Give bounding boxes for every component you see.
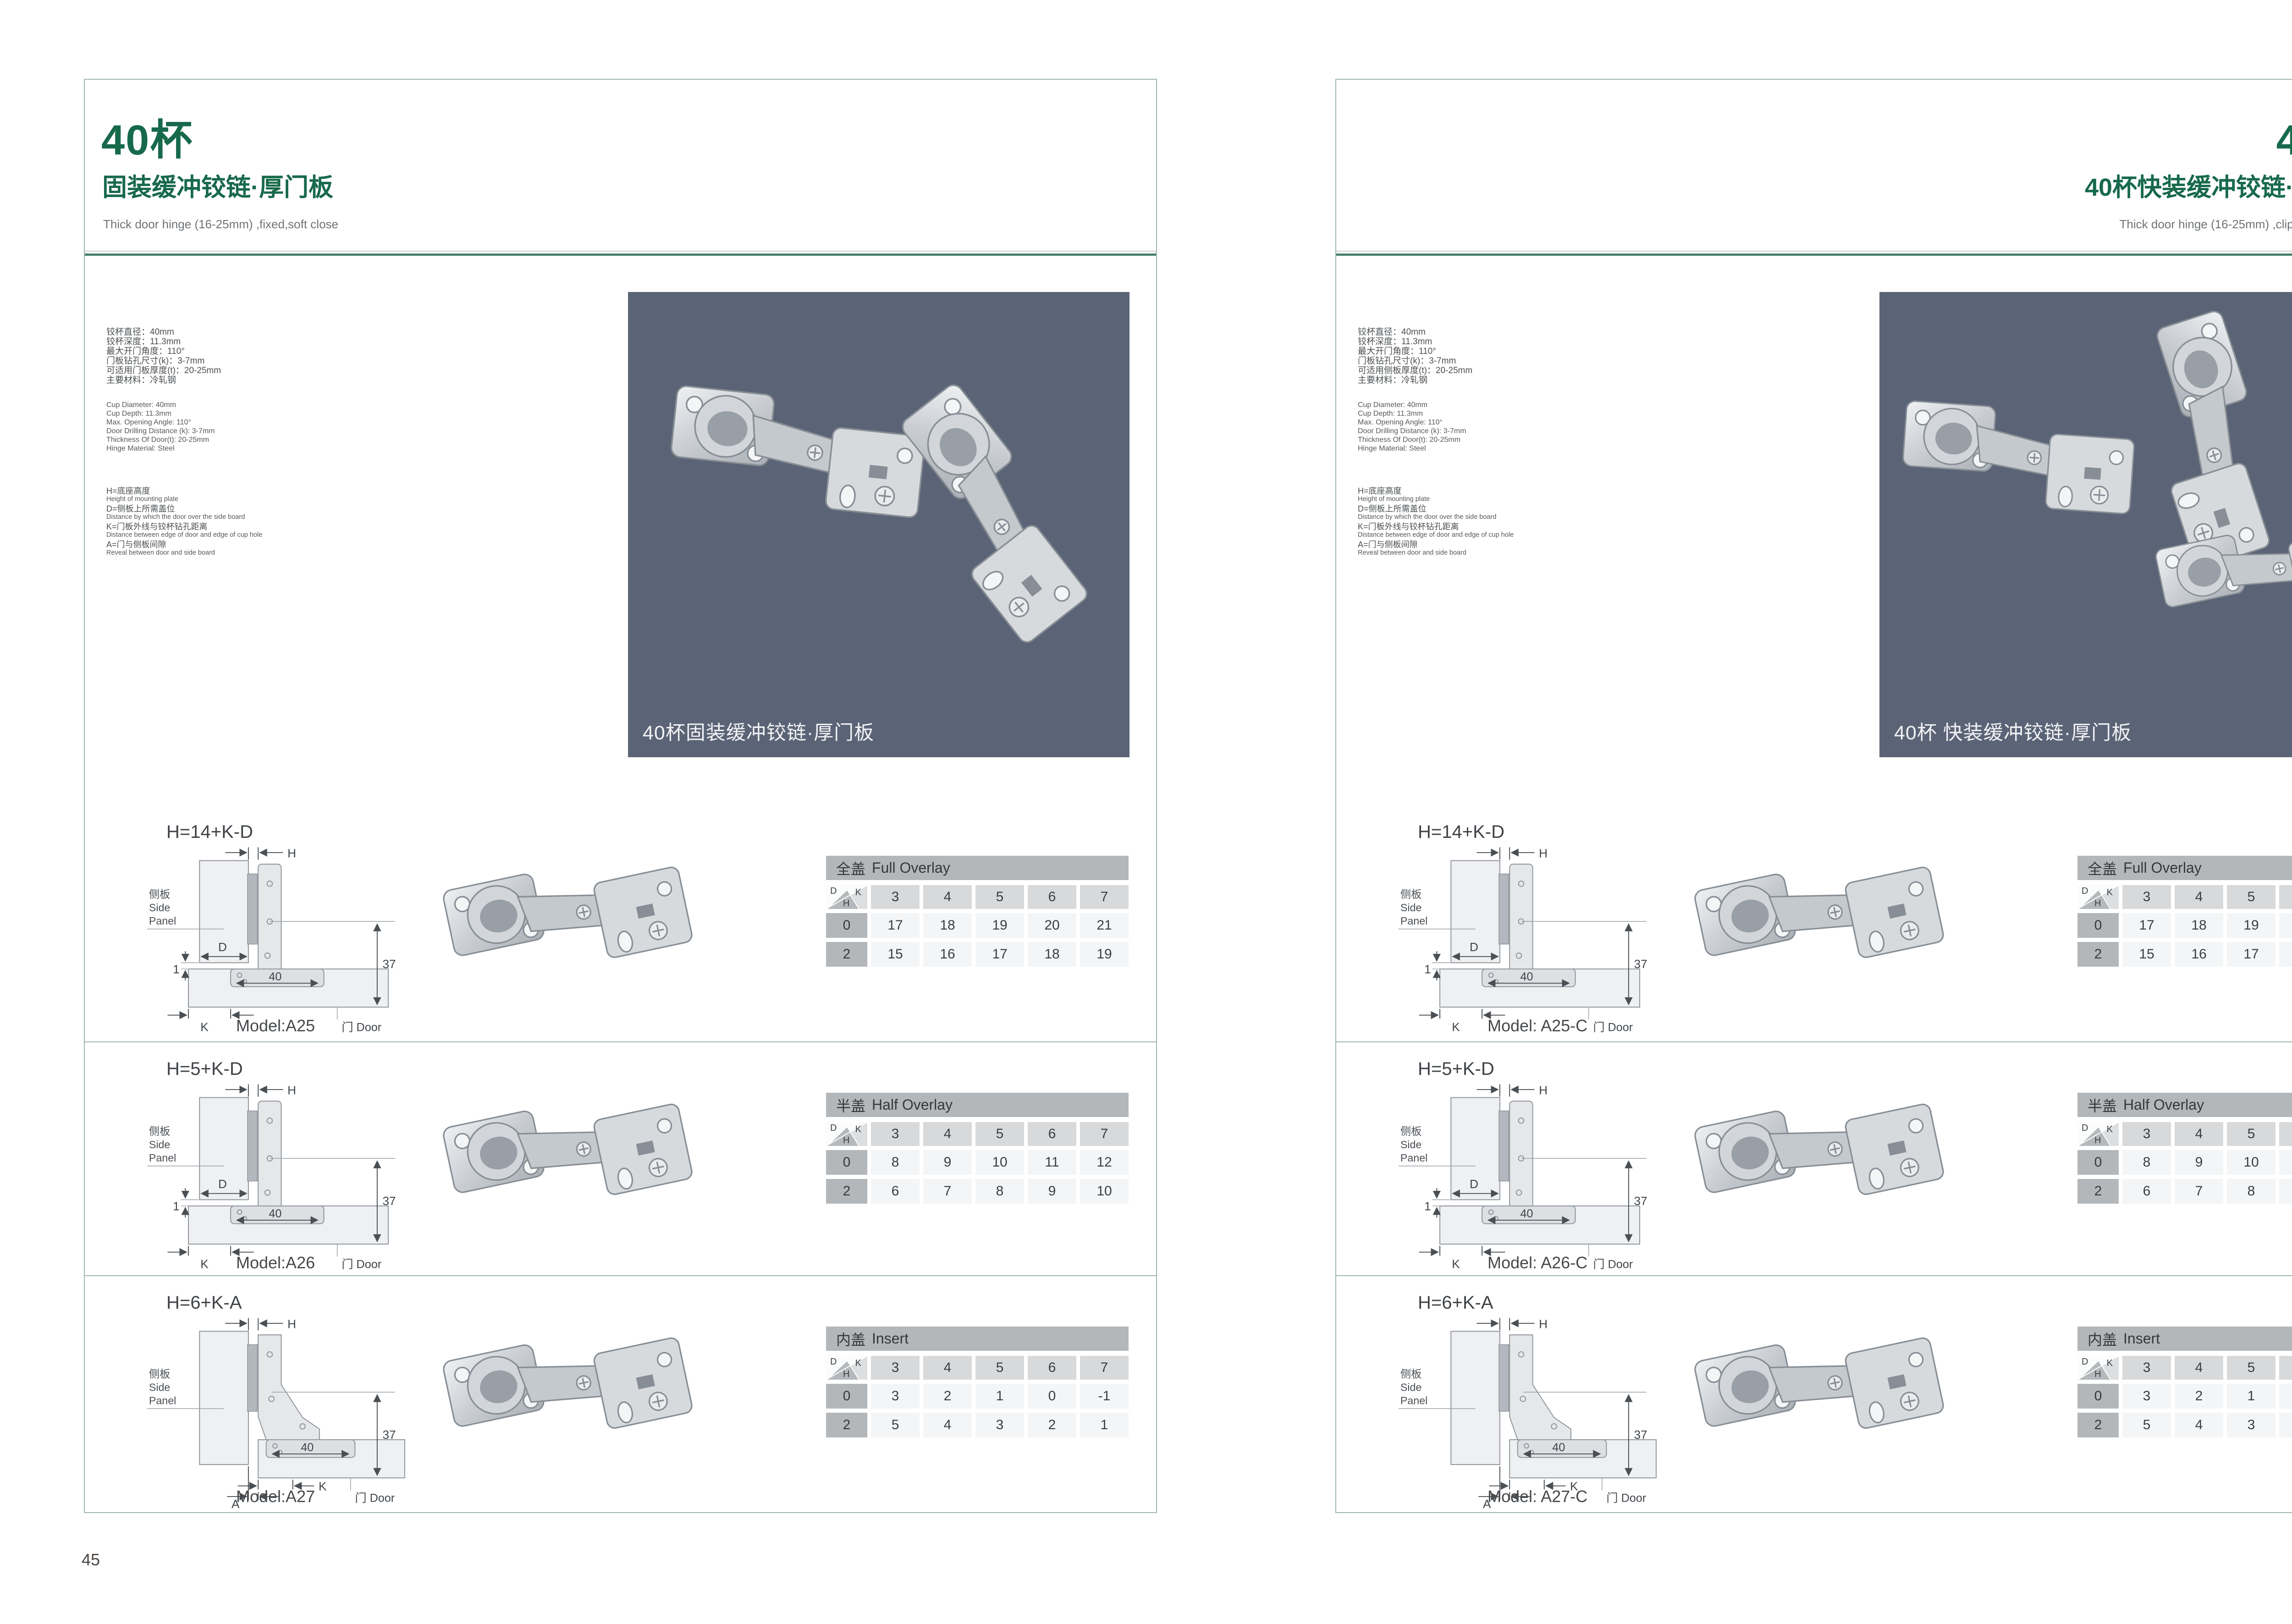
table-value-cell: 17 (975, 942, 1024, 967)
table-title-en: Full Overlay (2123, 859, 2202, 876)
hinge-photo-image (438, 1278, 694, 1475)
spec-line-en: Hinge Material: Steel (106, 444, 215, 453)
table-value-cell: 1 (975, 1384, 1024, 1409)
table-title-cn: 全盖 (2088, 858, 2117, 879)
side-panel-label-en2: Panel (149, 915, 176, 927)
product-photo-image (1879, 292, 2292, 757)
insert-diagram: H 侧板 Side Panel 37 40 K A 门 Door (1380, 1310, 1673, 1510)
hinge-photo (438, 807, 694, 1004)
page-46: 40杯 40杯快装缓冲铰链·厚门板 Thick door hinge (16-2… (1335, 79, 2292, 1513)
installation-diagram: H 侧板 Side Panel D 1 40 37 K 门 Door (128, 839, 422, 1039)
page-subtitle: 40杯快装缓冲铰链·厚门板 (2085, 173, 2292, 202)
dim-k-label: K (1452, 1257, 1460, 1271)
side-panel-label-en2: Panel (1400, 1152, 1427, 1164)
table-title: 半盖 Half Overlay (2077, 1093, 2292, 1117)
installation-diagram: H 侧板 Side Panel 37 40 K A 门 Door (128, 1310, 422, 1510)
dim-h-label: H (287, 847, 296, 860)
table-grid: D K H 345670891011122678910 (2077, 1122, 2292, 1204)
table-grid: D K H 3456703210-1254321 (826, 1356, 1129, 1437)
dim-d-label: D (1470, 940, 1478, 954)
spec-line-en: Cup Depth: 11.3mm (106, 409, 215, 418)
table-col-header: 6 (2279, 1122, 2292, 1146)
table-grid: D K H 345670171819202121516171819 (2077, 885, 2292, 967)
dim-37-label: 37 (382, 957, 396, 971)
dimension-table: 半盖 Half Overlay D K H 345670891011122678… (826, 1093, 1129, 1204)
hinge-photo (438, 1044, 694, 1241)
side-panel-label-en2: Panel (1400, 915, 1427, 927)
door-label: 门 Door (342, 1258, 381, 1271)
hinge-photo-image (1689, 807, 1946, 1004)
table-value-cell: 16 (923, 942, 972, 967)
table-col-header: 6 (2279, 885, 2292, 909)
corner-label-d: D (2082, 1123, 2088, 1134)
door-label: 门 Door (1593, 1258, 1633, 1271)
legend-term-en: Distance by which the door over the side… (106, 513, 519, 521)
spec-line-en: Cup Depth: 11.3mm (1358, 409, 1466, 418)
spec-line-en: Door Drilling Distance (k): 3-7mm (1358, 427, 1466, 435)
table-col-header: 4 (923, 1356, 972, 1380)
legend-term-cn: D=侧板上所需盖位 (106, 504, 519, 513)
spec-line-cn: 主要材料：冷轧钢 (106, 375, 221, 385)
table-grid: D K H 3456703210-1254321 (2077, 1356, 2292, 1437)
table-col-header: 6 (1028, 1122, 1076, 1146)
table-col-header: 4 (2175, 885, 2223, 909)
dimension-table: 内盖 Insert D K H 3456703210-1254321 (2077, 1327, 2292, 1437)
table-col-header: 5 (975, 1122, 1024, 1146)
table-value-cell: 10 (1080, 1179, 1129, 1204)
spec-line-en: Thickness Of Door(t): 20-25mm (1358, 435, 1466, 444)
corner-label-h: H (843, 898, 849, 909)
hinge-photo (438, 1278, 694, 1475)
door-label: 门 Door (355, 1492, 395, 1505)
spec-line-cn: 铰杯直径：40mm (1358, 327, 1472, 337)
spec-line-cn: 铰杯深度：11.3mm (106, 337, 221, 347)
row-divider (1336, 1275, 2292, 1276)
table-grid: D K H 345670891011122678910 (826, 1122, 1129, 1204)
table-value-cell: 3 (2122, 1384, 2171, 1409)
hinge-photo-image (438, 807, 694, 1004)
side-panel-shape (199, 1332, 248, 1465)
legend-term-cn: K=门板外线与铰杯钻孔距离 (1358, 522, 1770, 531)
legend-term-en: Reveal between door and side board (1358, 549, 1770, 556)
spec-line-en: Max. Opening Angle: 110° (106, 418, 215, 427)
model-label: Model: A27-C (1488, 1487, 1587, 1506)
table-value-cell: 6 (2122, 1179, 2171, 1204)
dim-40-label: 40 (301, 1441, 314, 1454)
installation-diagram: H 侧板 Side Panel 37 40 K A 门 Door (1380, 1310, 1673, 1510)
dim-40-label: 40 (1552, 1441, 1565, 1454)
table-col-header: 3 (871, 1356, 920, 1380)
table-title: 全盖 Full Overlay (826, 856, 1129, 880)
table-col-header: 4 (923, 885, 972, 909)
dim-37-label: 37 (382, 1194, 396, 1208)
table-value-cell: 18 (2279, 942, 2292, 967)
table-col-header: 3 (2122, 885, 2171, 909)
corner-label-k: K (855, 1124, 861, 1135)
photo-caption: 40杯固装缓冲铰链·厚门板 (643, 717, 874, 745)
table-value-cell: 3 (871, 1384, 920, 1409)
specs-cn: 铰杯直径：40mm铰杯深度：11.3mm最大开门角度：110°门板钻孔尺寸(k)… (106, 327, 221, 385)
dim-d-label: D (218, 1177, 227, 1191)
model-label: Model: A26-C (1488, 1253, 1587, 1272)
table-value-cell: 9 (2175, 1150, 2223, 1175)
dim-40-label: 40 (1520, 1207, 1533, 1220)
product-variant-row: H=14+K-D H 侧板 Side Panel D 1 40 37 (1336, 804, 2292, 1041)
specs-cn: 铰杯直径：40mm铰杯深度：11.3mm最大开门角度：110°门板钻孔尺寸(k)… (1358, 327, 1472, 385)
door-label: 门 Door (1606, 1492, 1646, 1505)
corner-label-d: D (2082, 1357, 2088, 1367)
table-value-cell: 19 (2227, 913, 2275, 938)
product-variant-row: H=6+K-A H 侧板 Side Panel 37 40 K (85, 1275, 1156, 1511)
table-col-header: 5 (2227, 1122, 2275, 1146)
legend-term-en: Distance between edge of door and edge o… (106, 531, 519, 539)
table-title-en: Half Overlay (2123, 1096, 2204, 1113)
table-col-header: 7 (1080, 885, 1129, 909)
page-title: 40杯 (101, 119, 193, 161)
table-value-cell: 19 (1080, 942, 1129, 967)
product-photo: 40杯固装缓冲铰链·厚门板 (628, 292, 1129, 757)
table-title: 内盖 Insert (826, 1327, 1129, 1351)
table-value-cell: 10 (2227, 1150, 2275, 1175)
dim-40-label: 40 (269, 970, 281, 983)
table-value-cell: 0 (1028, 1384, 1076, 1409)
table-value-cell: 18 (1028, 942, 1076, 967)
spec-line-en: Cup Diameter: 40mm (106, 401, 215, 409)
table-value-cell: 9 (923, 1150, 972, 1175)
side-panel-label-cn: 侧板 (1400, 1125, 1422, 1137)
table-row-label: 0 (2077, 913, 2119, 938)
table-value-cell: 8 (2227, 1179, 2275, 1204)
side-panel-label-cn: 侧板 (149, 1368, 171, 1380)
model-label: Model:A25 (236, 1016, 315, 1035)
table-value-cell: 18 (923, 913, 972, 938)
side-panel-label-cn: 侧板 (149, 888, 171, 900)
side-panel-label-en2: Panel (149, 1394, 176, 1406)
table-col-header: 7 (1080, 1356, 1129, 1380)
table-row-label: 2 (2077, 1413, 2119, 1437)
table-row-label: 0 (826, 1150, 867, 1175)
row-divider (1336, 1041, 2292, 1042)
dim-k-label: K (1452, 1020, 1460, 1034)
header-rule (85, 251, 1156, 252)
insert-diagram: H 侧板 Side Panel 37 40 K A 门 Door (128, 1310, 422, 1510)
table-value-cell: 0 (2279, 1384, 2292, 1409)
dim-k-label: K (319, 1479, 327, 1493)
page-number: 45 (82, 1550, 100, 1569)
corner-label-d: D (830, 1123, 837, 1134)
header-rule (1336, 251, 2292, 252)
spec-line-cn: 可适用侧板厚度(t)：20-25mm (1358, 366, 1472, 375)
table-corner-cell: D K H (826, 1356, 867, 1380)
overlay-diagram: H 侧板 Side Panel D 1 40 37 K 门 Door (1380, 1076, 1673, 1276)
model-label: Model: A25-C (1488, 1016, 1587, 1035)
table-value-cell: 19 (975, 913, 1024, 938)
table-value-cell: 3 (975, 1413, 1024, 1437)
header-rule-accent (1336, 253, 2292, 256)
table-col-header: 3 (2122, 1356, 2171, 1380)
corner-label-d: D (2082, 886, 2088, 897)
spec-line-cn: 最大开门角度：110° (106, 347, 221, 356)
table-grid: D K H 345670171819202121516171819 (826, 885, 1129, 967)
table-title-en: Insert (872, 1330, 909, 1347)
page-subtitle: 固装缓冲铰链·厚门板 (102, 173, 333, 202)
product-variant-row: H=5+K-D H 侧板 Side Panel D 1 40 37 (85, 1041, 1156, 1275)
side-panel-label-en2: Panel (1400, 1394, 1427, 1406)
corner-label-k: K (855, 887, 861, 898)
corner-label-k: K (855, 1358, 861, 1369)
table-value-cell: 11 (1028, 1150, 1076, 1175)
spec-line-cn: 门板钻孔尺寸(k)：3-7mm (1358, 356, 1472, 366)
table-value-cell: 1 (2227, 1384, 2275, 1409)
legend-term-en: Reveal between door and side board (106, 549, 519, 556)
spec-line-cn: 主要材料：冷轧钢 (1358, 375, 1472, 385)
table-value-cell: 2 (1028, 1413, 1076, 1437)
legend-term-en: Height of mounting plate (106, 495, 519, 503)
dim-h-label: H (1539, 847, 1548, 860)
dim-k-label: K (200, 1020, 209, 1034)
table-row-label: 0 (2077, 1150, 2119, 1175)
dim-40-label: 40 (1520, 970, 1533, 983)
dimension-table: 内盖 Insert D K H 3456703210-1254321 (826, 1327, 1129, 1437)
product-variant-row: H=14+K-D H 侧板 Side Panel D 1 40 37 (85, 804, 1156, 1041)
table-col-header: 5 (2227, 1356, 2275, 1380)
table-col-header: 3 (2122, 1122, 2171, 1146)
table-corner-cell: D K H (2077, 1356, 2119, 1380)
table-title: 半盖 Half Overlay (826, 1093, 1129, 1117)
corner-label-d: D (830, 886, 837, 897)
table-col-header: 6 (1028, 1356, 1076, 1380)
table-value-cell: 20 (2279, 913, 2292, 938)
table-row-label: 0 (826, 913, 867, 938)
dim-37-label: 37 (382, 1428, 396, 1442)
page-subtitle-en: Thick door hinge (16-25mm) ,clip on ,sof… (2120, 217, 2292, 231)
table-value-cell: -1 (1080, 1384, 1129, 1409)
table-value-cell: 11 (2279, 1150, 2292, 1175)
table-value-cell: 5 (871, 1413, 920, 1437)
table-value-cell: 6 (871, 1179, 920, 1204)
dim-d-label: D (218, 940, 227, 954)
side-panel-label-en1: Side (149, 1381, 171, 1393)
spec-line-en: Thickness Of Door(t): 20-25mm (106, 435, 215, 444)
table-col-header: 4 (2175, 1356, 2223, 1380)
corner-label-k: K (2107, 1124, 2113, 1135)
dimension-table: 全盖 Full Overlay D K H 345670171819202121… (826, 856, 1129, 967)
door-label: 门 Door (342, 1021, 381, 1034)
table-title-cn: 内盖 (2088, 1328, 2117, 1349)
table-value-cell: 2 (923, 1384, 972, 1409)
product-photo: 40杯 快装缓冲铰链·厚门板 (1879, 292, 2292, 757)
table-col-header: 6 (1028, 885, 1076, 909)
side-panel-label-en1: Side (1400, 1139, 1422, 1151)
table-value-cell: 2 (2175, 1384, 2223, 1409)
table-value-cell: 12 (1080, 1150, 1129, 1175)
table-col-header: 6 (2279, 1356, 2292, 1380)
table-value-cell: 20 (1028, 913, 1076, 938)
table-title-cn: 内盖 (836, 1328, 865, 1349)
table-row-label: 2 (826, 1179, 867, 1204)
corner-label-h: H (2094, 1135, 2101, 1146)
table-value-cell: 10 (975, 1150, 1024, 1175)
dimension-table: 半盖 Half Overlay D K H 345670891011122678… (2077, 1093, 2292, 1204)
catalog-spread: 40杯 固装缓冲铰链·厚门板 Thick door hinge (16-25mm… (0, 0, 2292, 1624)
legend-term-en: Distance by which the door over the side… (1358, 513, 1770, 521)
hinge-photo-image (1689, 1278, 1946, 1475)
hinge-photo (1689, 1278, 1946, 1475)
dimension-legend: H=底座高度Height of mounting plateD=侧板上所需盖位D… (1358, 485, 1770, 556)
model-label: Model:A27 (236, 1487, 315, 1506)
table-col-header: 5 (2227, 885, 2275, 909)
legend-term-en: Height of mounting plate (1358, 495, 1770, 503)
side-panel-label-en2: Panel (149, 1152, 176, 1164)
table-title-cn: 半盖 (836, 1095, 865, 1116)
hinge-photo-image (1689, 1044, 1946, 1241)
spec-line-en: Cup Diameter: 40mm (1358, 401, 1466, 409)
hinge-photo-image (438, 1044, 694, 1241)
table-col-header: 4 (923, 1122, 972, 1146)
table-row-label: 0 (2077, 1384, 2119, 1409)
table-value-cell: 15 (2122, 942, 2171, 967)
product-photo-image (628, 292, 1129, 757)
dim-37-label: 37 (1634, 1428, 1647, 1442)
legend-term-cn: A=门与侧板间隙 (1358, 540, 1770, 549)
table-value-cell: 9 (2279, 1179, 2292, 1204)
dim-37-label: 37 (1634, 957, 1647, 971)
table-value-cell: 5 (2122, 1413, 2171, 1437)
legend-term-cn: D=侧板上所需盖位 (1358, 504, 1770, 513)
table-title-en: Full Overlay (872, 859, 950, 876)
spec-line-cn: 最大开门角度：110° (1358, 347, 1472, 356)
table-title-cn: 半盖 (2088, 1095, 2117, 1116)
side-panel-shape (1451, 1332, 1500, 1465)
spec-line-cn: 门板钻孔尺寸(k)：3-7mm (106, 356, 221, 366)
dim-37-label: 37 (1634, 1194, 1647, 1208)
table-value-cell: 4 (2175, 1413, 2223, 1437)
corner-label-k: K (2107, 887, 2113, 898)
table-corner-cell: D K H (826, 885, 867, 909)
spec-line-en: Door Drilling Distance (k): 3-7mm (106, 427, 215, 435)
table-corner-cell: D K H (2077, 885, 2119, 909)
specs-en: Cup Diameter: 40mmCup Depth: 11.3mmMax. … (1358, 401, 1466, 453)
table-col-header: 3 (871, 1122, 920, 1146)
table-value-cell: 9 (1028, 1179, 1076, 1204)
side-panel-label-en1: Side (1400, 902, 1422, 914)
table-value-cell: 3 (2227, 1413, 2275, 1437)
corner-label-h: H (843, 1135, 849, 1146)
installation-diagram: H 侧板 Side Panel D 1 40 37 K 门 Door (1380, 839, 1673, 1039)
table-row-label: 2 (826, 1413, 867, 1437)
corner-label-k: K (2107, 1358, 2113, 1369)
table-row-label: 2 (2077, 1179, 2119, 1204)
table-row-label: 0 (826, 1384, 867, 1409)
corner-label-h: H (843, 1369, 849, 1380)
side-panel-label-cn: 侧板 (1400, 888, 1422, 900)
table-value-cell: 17 (2227, 942, 2275, 967)
side-panel-label-en1: Side (1400, 1381, 1422, 1393)
hinge-photo (1689, 1044, 1946, 1241)
table-col-header: 7 (1080, 1122, 1129, 1146)
table-corner-cell: D K H (826, 1122, 867, 1146)
spec-line-en: Hinge Material: Steel (1358, 444, 1466, 453)
corner-label-d: D (830, 1357, 837, 1367)
table-value-cell: 16 (2175, 942, 2223, 967)
product-variant-row: H=6+K-A H 侧板 Side Panel 37 40 K (1336, 1275, 2292, 1511)
legend-term-cn: A=门与侧板间隙 (106, 540, 519, 549)
legend-term-en: Distance between edge of door and edge o… (1358, 531, 1770, 539)
page-45: 40杯 固装缓冲铰链·厚门板 Thick door hinge (16-25mm… (84, 79, 1157, 1513)
door-label: 门 Door (1593, 1021, 1633, 1034)
table-col-header: 5 (975, 885, 1024, 909)
product-variant-row: H=5+K-D H 侧板 Side Panel D 1 40 37 (1336, 1041, 2292, 1275)
table-value-cell: 17 (2122, 913, 2171, 938)
dim-gap-label: 1 (1424, 1200, 1431, 1213)
dim-h-label: H (287, 1084, 296, 1097)
table-value-cell: 2 (2279, 1413, 2292, 1437)
table-value-cell: 18 (2175, 913, 2223, 938)
specs-en: Cup Diameter: 40mmCup Depth: 11.3mmMax. … (106, 401, 215, 453)
row-divider (85, 1041, 1156, 1042)
corner-label-h: H (2094, 898, 2101, 909)
hinge-photo (1689, 807, 1946, 1004)
table-value-cell: 17 (871, 913, 920, 938)
page-subtitle-en: Thick door hinge (16-25mm) ,fixed,soft c… (103, 217, 338, 231)
overlay-diagram: H 侧板 Side Panel D 1 40 37 K 门 Door (128, 839, 422, 1039)
table-col-header: 4 (2175, 1122, 2223, 1146)
table-title: 内盖 Insert (2077, 1327, 2292, 1351)
spec-line-en: Max. Opening Angle: 110° (1358, 418, 1466, 427)
table-value-cell: 8 (871, 1150, 920, 1175)
dim-h-label: H (1539, 1317, 1548, 1331)
table-title-en: Insert (2123, 1330, 2160, 1347)
table-title-en: Half Overlay (872, 1096, 953, 1113)
side-panel-label-en1: Side (149, 902, 171, 914)
photo-caption: 40杯 快装缓冲铰链·厚门板 (1894, 717, 2132, 745)
legend-term-cn: H=底座高度 (106, 486, 519, 495)
table-value-cell: 7 (2175, 1179, 2223, 1204)
installation-diagram: H 侧板 Side Panel D 1 40 37 K 门 Door (128, 1076, 422, 1276)
table-corner-cell: D K H (2077, 1122, 2119, 1146)
table-value-cell: 1 (1080, 1413, 1129, 1437)
table-value-cell: 8 (975, 1179, 1024, 1204)
page-title: 40杯 (2276, 119, 2292, 161)
table-col-header: 5 (975, 1356, 1024, 1380)
overlay-diagram: H 侧板 Side Panel D 1 40 37 K 门 Door (128, 1076, 422, 1276)
legend-term-cn: H=底座高度 (1358, 486, 1770, 495)
dim-h-label: H (1539, 1084, 1548, 1097)
row-divider (85, 1275, 1156, 1276)
dimension-legend: H=底座高度Height of mounting plateD=侧板上所需盖位D… (106, 485, 519, 556)
table-value-cell: 15 (871, 942, 920, 967)
dim-gap-label: 1 (1424, 963, 1431, 976)
side-panel-label-cn: 侧板 (149, 1125, 171, 1137)
dim-gap-label: 1 (173, 1200, 180, 1213)
side-panel-label-cn: 侧板 (1400, 1368, 1422, 1380)
model-label: Model:A26 (236, 1253, 315, 1272)
dim-h-label: H (287, 1317, 296, 1331)
dim-40-label: 40 (269, 1207, 281, 1220)
table-title-cn: 全盖 (836, 858, 865, 879)
header-rule-accent (85, 253, 1156, 256)
dim-gap-label: 1 (173, 963, 180, 976)
table-value-cell: 7 (923, 1179, 972, 1204)
dim-d-label: D (1470, 1177, 1478, 1191)
spec-line-cn: 可适用门板厚度(t)：20-25mm (106, 366, 221, 375)
dimension-table: 全盖 Full Overlay D K H 345670171819202121… (2077, 856, 2292, 967)
table-value-cell: 21 (1080, 913, 1129, 938)
table-value-cell: 8 (2122, 1150, 2171, 1175)
legend-term-cn: K=门板外线与铰杯钻孔距离 (106, 522, 519, 531)
table-row-label: 2 (2077, 942, 2119, 967)
table-value-cell: 4 (923, 1413, 972, 1437)
